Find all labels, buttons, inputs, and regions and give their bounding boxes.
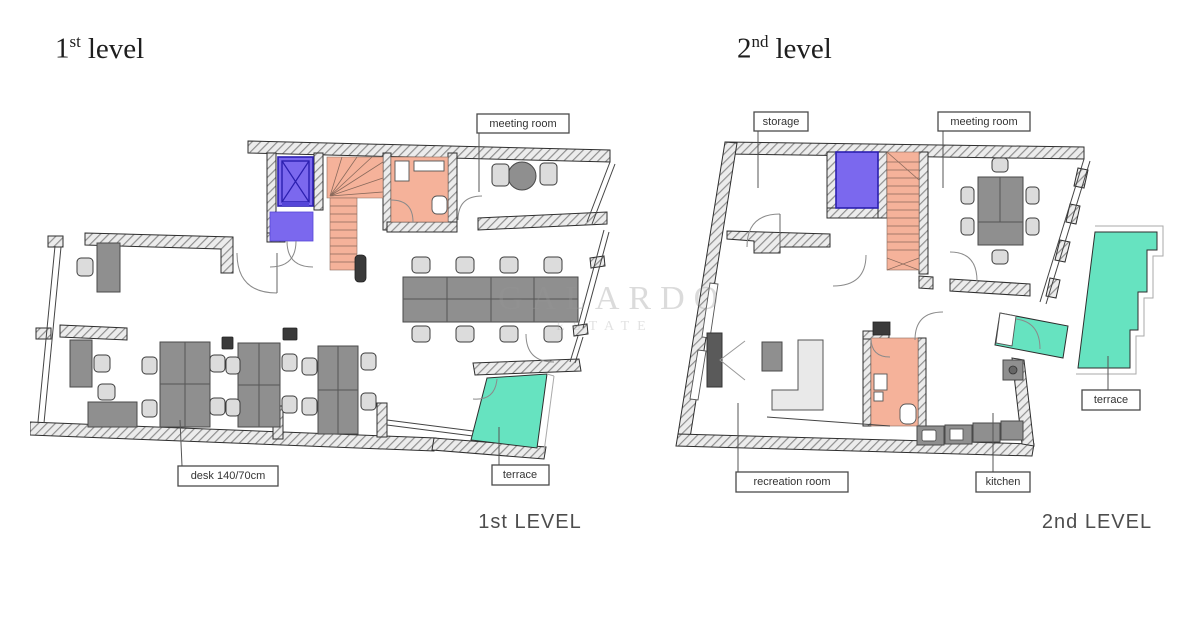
level2-terrace — [995, 226, 1163, 374]
level1-stairs — [327, 157, 383, 282]
level2-floorplan: storage meeting room terrace recreation … — [650, 100, 1170, 560]
level1-title-word: level — [88, 33, 144, 65]
level2-title-suffix: nd — [752, 32, 769, 51]
chair — [1026, 187, 1039, 204]
floorplan-page: 1stlevel 2ndlevel — [0, 0, 1200, 620]
chair — [492, 164, 509, 186]
desk — [88, 402, 137, 427]
level1-conference-table — [403, 257, 578, 342]
chair — [544, 326, 562, 342]
label-storage: storage — [763, 116, 800, 128]
chair — [500, 326, 518, 342]
chair — [98, 384, 115, 400]
toilet — [432, 196, 447, 214]
label-terrace: terrace — [503, 469, 537, 481]
level2-stairs — [887, 152, 919, 270]
chair — [961, 187, 974, 204]
level2-title: 2ndlevel — [737, 32, 832, 66]
label-desk: desk 140/70cm — [191, 470, 266, 482]
sink — [395, 161, 409, 181]
chair — [77, 258, 93, 276]
desk — [70, 340, 92, 387]
chair — [412, 257, 430, 273]
label-recreation-room: recreation room — [753, 476, 830, 488]
chair — [544, 257, 562, 273]
level1-terrace — [471, 374, 554, 452]
radiator — [873, 322, 890, 335]
level2-meeting-room — [961, 158, 1039, 264]
side-table — [762, 342, 782, 371]
chair — [992, 158, 1008, 172]
sink — [874, 374, 887, 390]
toilet — [900, 404, 916, 424]
label-meeting-room: meeting room — [489, 118, 556, 130]
level2-title-number: 2 — [737, 33, 752, 65]
kitchen-sink — [922, 430, 936, 441]
chair — [500, 257, 518, 273]
level1-bathroom — [391, 157, 448, 222]
level2-kitchen — [917, 360, 1023, 445]
desk — [97, 243, 120, 292]
level1-floorplan: meeting room desk 140/70cm terrace 1st L… — [30, 100, 630, 560]
level2-title-word: level — [776, 33, 832, 65]
chair — [456, 257, 474, 273]
label-meeting-room: meeting room — [950, 116, 1017, 128]
kitchen-counter — [1001, 421, 1023, 440]
chair — [142, 400, 157, 417]
level1-title-number: 1 — [55, 33, 70, 65]
level1-title: 1stlevel — [55, 32, 144, 66]
chair — [210, 398, 225, 415]
level1-title-suffix: st — [70, 32, 81, 51]
stove — [950, 429, 963, 440]
chair — [282, 354, 297, 371]
chair — [94, 355, 110, 372]
label-terrace: terrace — [1094, 394, 1128, 406]
elevator-lobby — [270, 212, 313, 241]
level2-caption: 2nd LEVEL — [1042, 511, 1152, 533]
chair — [302, 358, 317, 375]
chair — [961, 218, 974, 235]
label-kitchen: kitchen — [986, 476, 1021, 488]
chair — [361, 393, 376, 410]
level1-caption: 1st LEVEL — [478, 511, 582, 533]
cabinet — [414, 161, 444, 171]
level2-elevator — [836, 152, 878, 208]
round-table — [508, 162, 536, 190]
chair — [142, 357, 157, 374]
chair — [540, 163, 557, 185]
elevator-cab — [836, 152, 878, 208]
radiator — [283, 328, 297, 340]
chair — [361, 353, 376, 370]
chair — [282, 396, 297, 413]
chair — [456, 326, 474, 342]
chair — [992, 250, 1008, 264]
radiator — [222, 337, 233, 349]
chair — [1026, 218, 1039, 235]
stair-handrail — [355, 255, 366, 282]
tv-view-lines — [720, 341, 745, 380]
chair — [226, 357, 240, 374]
chair — [412, 326, 430, 342]
chair — [210, 355, 225, 372]
chair — [226, 399, 240, 416]
level1-meeting-room — [492, 162, 557, 190]
chair — [302, 398, 317, 415]
kitchen-counter — [973, 423, 1000, 442]
